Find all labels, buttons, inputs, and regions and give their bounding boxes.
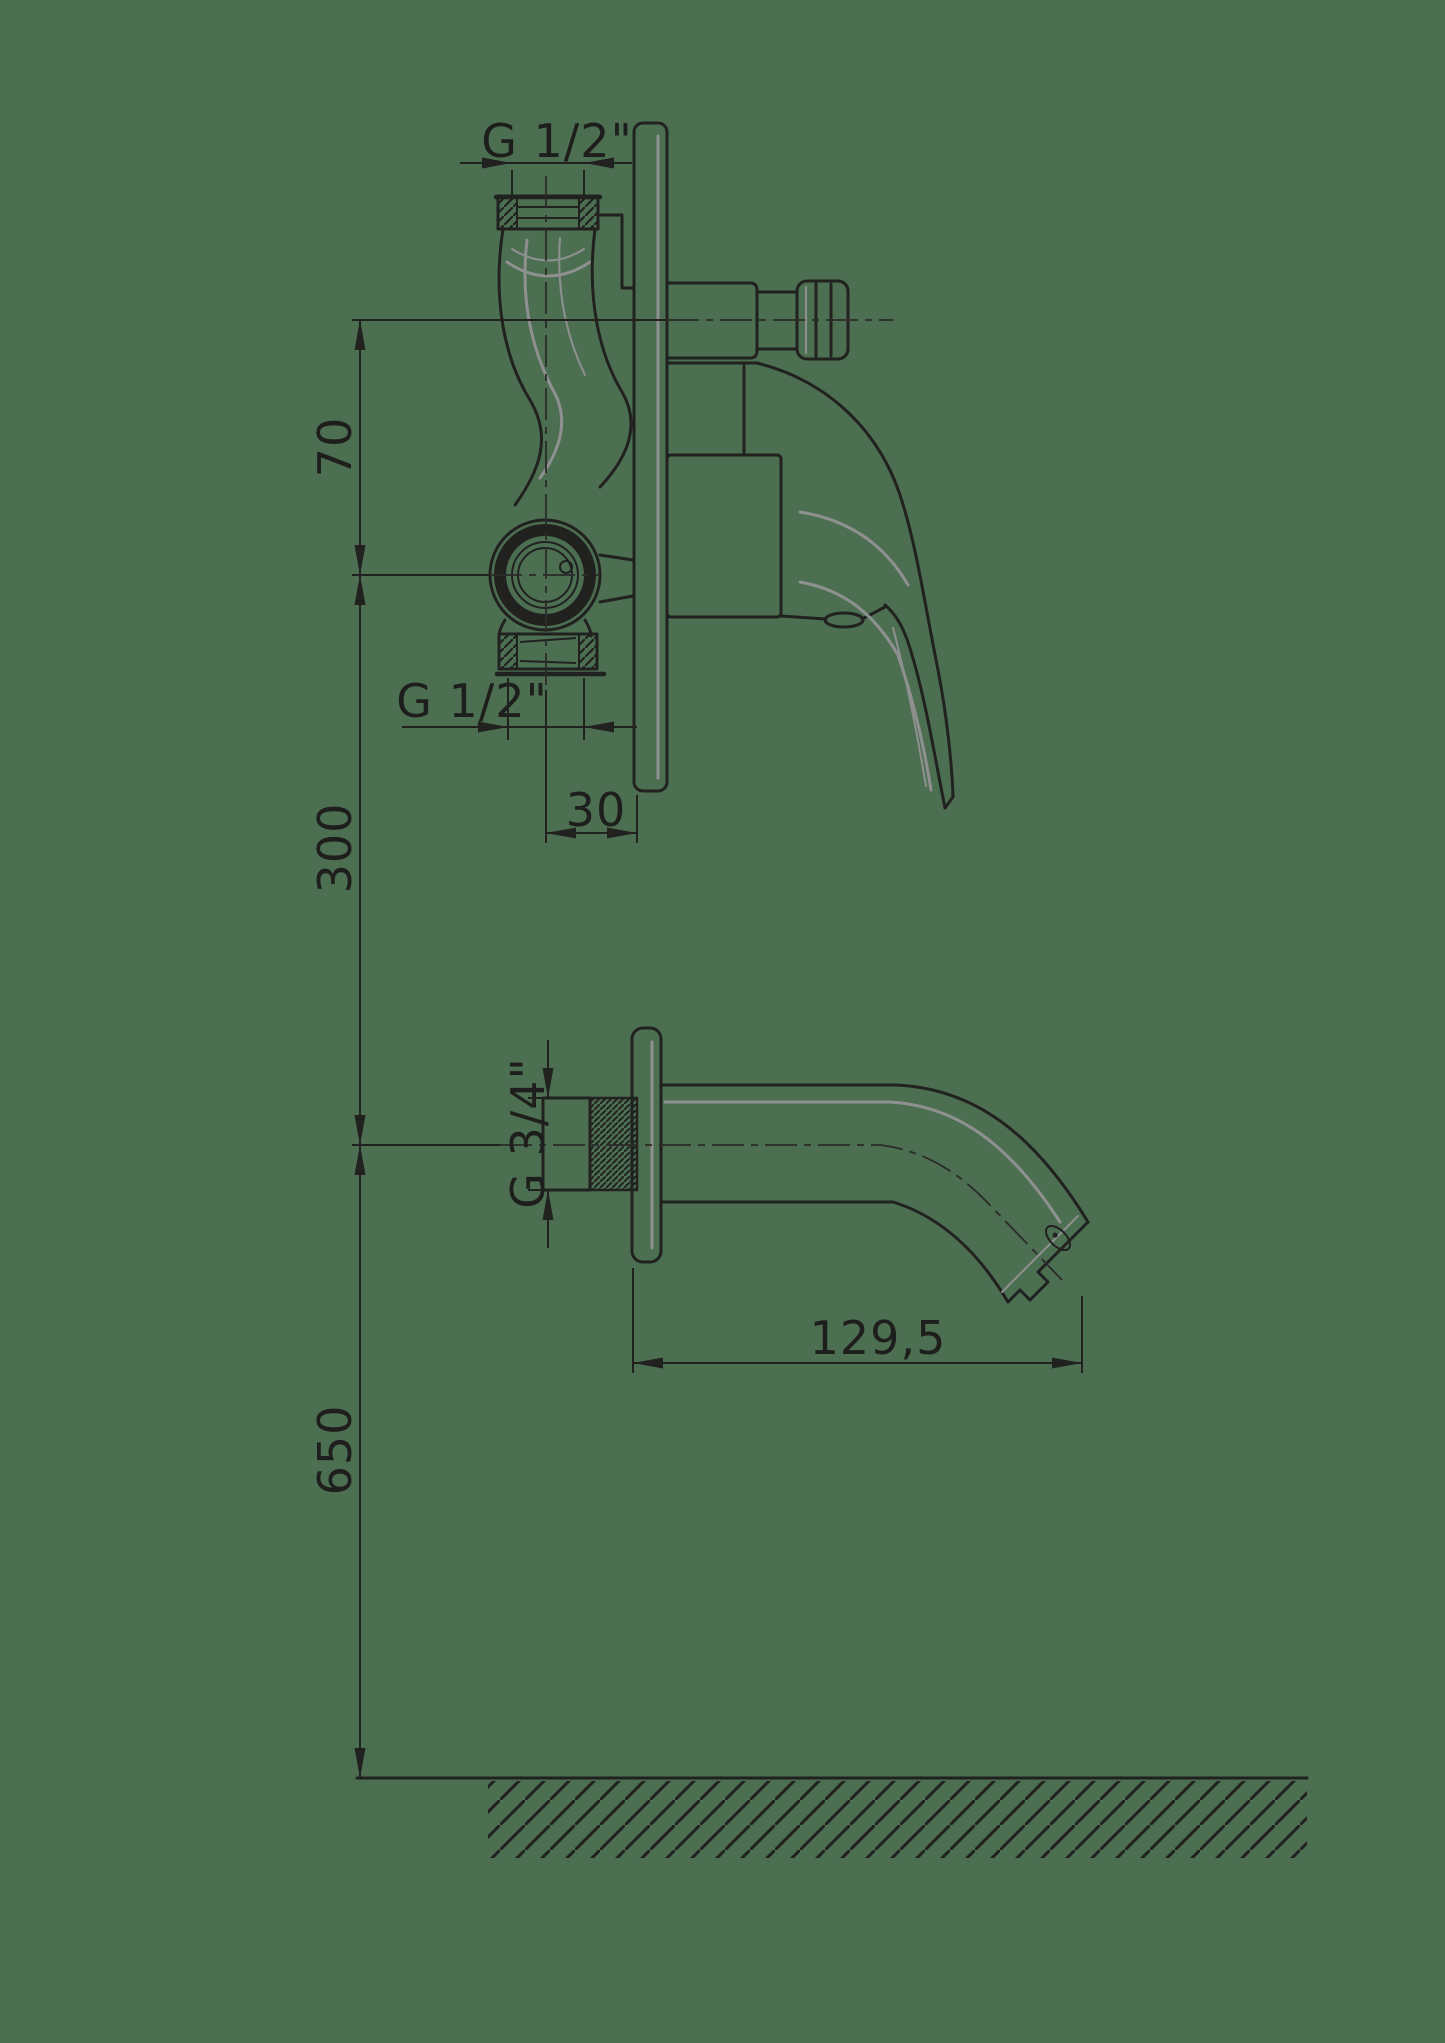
spout-end-face [1008, 1222, 1088, 1302]
spout-thread-hatch [590, 1098, 637, 1190]
arrow-300-top [355, 575, 366, 605]
handle-assembly [667, 363, 953, 808]
bottom-thread-connector [497, 620, 604, 674]
dim-spout-reach: 129,5 [633, 1268, 1082, 1373]
dim-label-70: 70 [308, 417, 362, 478]
shower-outlet-stub [667, 281, 893, 359]
wall-plate-outline [634, 123, 667, 791]
arrow-30-left [546, 828, 576, 839]
handle-highlight-2 [800, 582, 931, 790]
technical-drawing: 70 300 650 G 1/2" G 1/2" 30 [0, 0, 1445, 2043]
arrow-70-top [355, 320, 366, 350]
spout-view [500, 1028, 1088, 1302]
arrow-70-bottom [355, 545, 366, 575]
wall-plate [634, 123, 667, 791]
dim-label-129-5: 129,5 [810, 1311, 947, 1365]
top-dome-highlight-1 [507, 262, 590, 276]
dim-label-650: 650 [308, 1405, 362, 1496]
spout-logo [1042, 1222, 1075, 1255]
arrow-300-bottom [355, 1115, 366, 1145]
handle-underside-left [781, 616, 826, 619]
upper-plate-bracket [598, 215, 634, 288]
ground-hatch [488, 1781, 1307, 1858]
body-right-edge [592, 229, 631, 487]
lower-plate-bracket-1 [600, 555, 633, 560]
dim-label-300: 300 [308, 803, 362, 894]
spout-bottom-edge [661, 1202, 1008, 1302]
dim-bottom-thread: G 1/2" [396, 674, 637, 740]
handle-set-screw [825, 613, 863, 627]
handle-outer-edge [757, 363, 953, 797]
arrow-650-bottom [355, 1748, 366, 1778]
ground [357, 1778, 1307, 1858]
arrow-bottom-thread-right [584, 722, 614, 733]
lower-plate-bracket-2 [600, 596, 633, 602]
arrow-129-5-right [1052, 1358, 1082, 1369]
spout-end-highlight [1002, 1216, 1078, 1292]
arrow-650-top [355, 1145, 366, 1175]
bottom-thread-line-1 [520, 638, 576, 642]
bottom-thread-line-2 [520, 661, 576, 663]
bottom-nut-hatch-right [579, 634, 597, 669]
escutcheon [667, 455, 781, 617]
top-nut-hatch-left [498, 196, 517, 229]
arrow-129-5-left [633, 1358, 663, 1369]
dim-spout-thread: G 3/4" [501, 1040, 555, 1248]
dim-label-bottom-thread: G 1/2" [396, 674, 547, 728]
handle-highlight-1 [800, 512, 908, 585]
technical-drawing-page: 70 300 650 G 1/2" G 1/2" 30 [0, 0, 1445, 2043]
dim-plate-projection: 30 [546, 690, 637, 843]
top-nut-hatch-right [579, 196, 598, 229]
top-dome-highlight-2 [512, 249, 584, 261]
bottom-nut-hatch-left [499, 634, 517, 669]
valve-cartridge [490, 520, 600, 630]
top-thread-connector [496, 196, 600, 276]
